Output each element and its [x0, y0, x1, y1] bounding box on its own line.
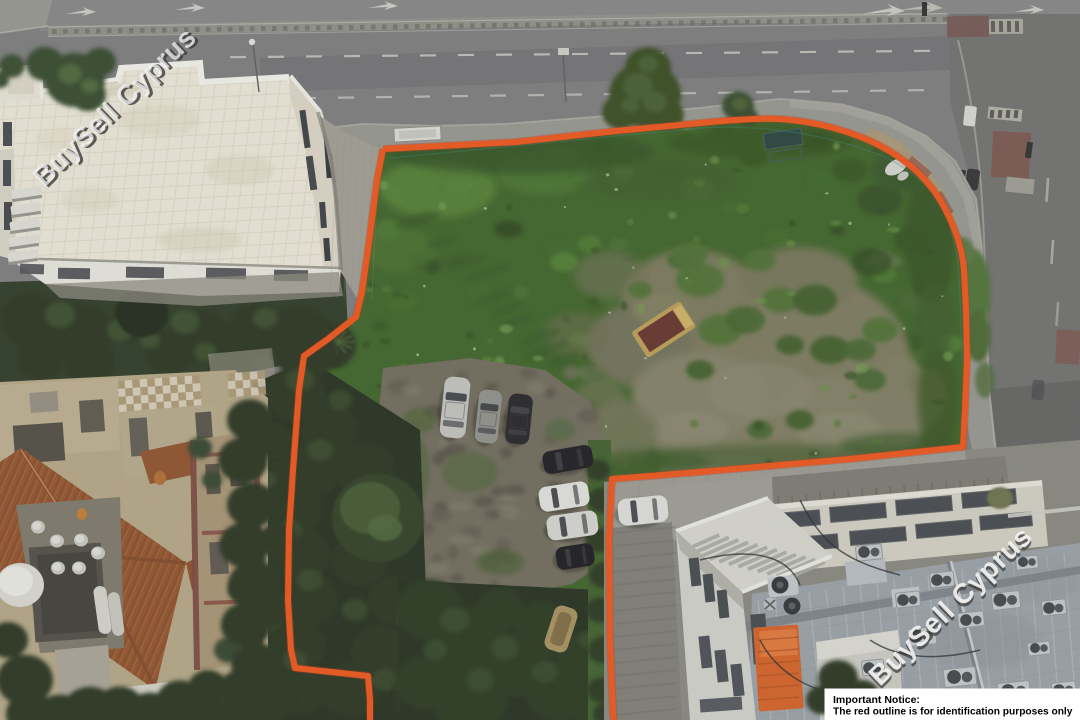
svg-text:Important Notice:: Important Notice:	[833, 694, 920, 706]
svg-text:The red outline is for identif: The red outline is for identification pu…	[833, 707, 1073, 718]
